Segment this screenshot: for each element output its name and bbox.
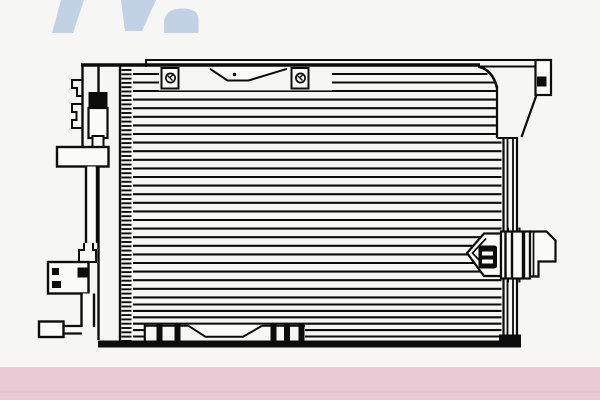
bracket-square-hole [537,77,547,87]
logo-stroke-2 [121,0,156,31]
core-corner-chamfer [478,67,497,89]
condenser-drawing [0,0,600,400]
assembly-bottom-edge [98,341,521,348]
bottom-bar-slot [284,325,290,343]
lower-tube-fill [83,294,93,327]
footer-band-shade-line [0,391,600,393]
top-right-bracket [522,60,552,137]
mount-arm [57,147,109,167]
bottom-bar-slot [175,325,181,343]
logo-stroke-3 [164,9,199,34]
bottom-bar-slot [157,325,163,343]
bolt-slot-lower [482,260,493,264]
product-image [0,0,600,400]
core-left-fin-ticks [122,70,132,341]
lower-bracket-block [48,262,89,294]
bracket-support-strut [522,95,537,137]
bottom-bar-slot [299,325,305,343]
core-tube-fins [133,74,502,337]
bottom-bar-slot [271,325,277,343]
outlet-pipe-connector [39,322,64,338]
footer-bar [0,367,600,400]
center-clip-pin [233,73,236,76]
pipe-stem-fill [87,167,96,244]
stem-coupler [79,243,96,262]
footer-band [0,367,600,400]
drier-body [89,108,108,138]
bracket-hole-2 [52,281,61,288]
receiver-drier-assembly [39,64,109,340]
logo-stroke-1 [52,0,84,33]
fitting-bolt [479,246,498,269]
drier-base [93,136,104,147]
bolt-slot-upper [482,252,493,256]
logo-watermark [52,0,199,33]
outlet-pipe-fill [63,327,82,332]
bracket-boss [78,268,88,278]
bracket-hole-1 [52,268,59,275]
right-fitting-block [467,228,556,283]
drier-cap [89,92,108,108]
